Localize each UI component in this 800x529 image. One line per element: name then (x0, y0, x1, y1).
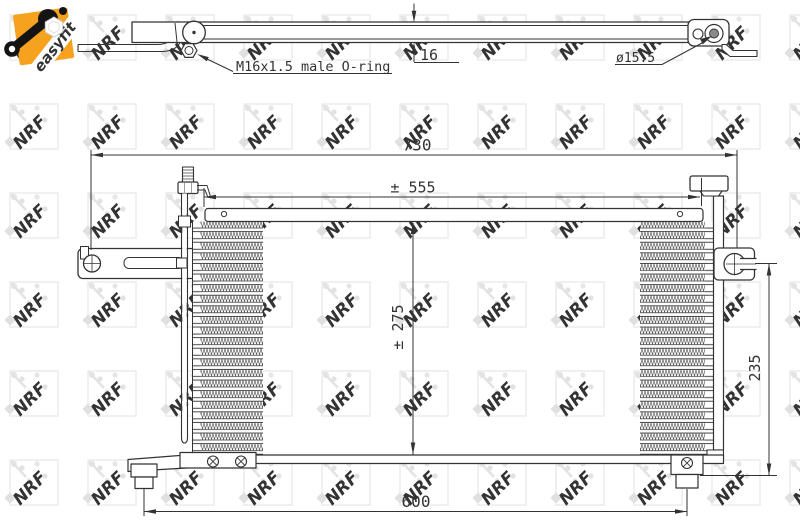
port-diameter-label: ø15.5 (616, 51, 655, 66)
oring-fitting-nut (181, 44, 197, 58)
mounting-foot-right (671, 455, 703, 488)
dim-overall-width-label: 730 (403, 136, 432, 155)
dim-core-height-label: ± 275 (389, 304, 407, 349)
pipe-clamp-upper (179, 216, 191, 227)
top-header (205, 209, 703, 222)
tube-stubs-right (705, 222, 713, 456)
inlet-port-circle (183, 21, 206, 44)
thickness-label: 16 (420, 46, 438, 64)
condenser-technical-drawing: NRF easyfit (0, 0, 800, 529)
fitting-label: M16x1.5 male O-ring (236, 59, 390, 75)
screw-left-a (208, 456, 219, 467)
tube-stubs-left (193, 222, 201, 456)
dim-right-height-label: 235 (746, 354, 764, 381)
right-mounting-bracket (714, 248, 757, 280)
fin-band-left (201, 222, 264, 456)
dim-mounting-width-label: 600 (402, 492, 431, 511)
dim-core-width-label: ± 555 (390, 179, 435, 197)
side-tube-body (132, 22, 692, 43)
fin-band-right (640, 222, 705, 456)
screw-left-b (236, 456, 247, 467)
pipe-clamp-lower (177, 258, 188, 268)
mounting-foot-left (131, 464, 157, 489)
